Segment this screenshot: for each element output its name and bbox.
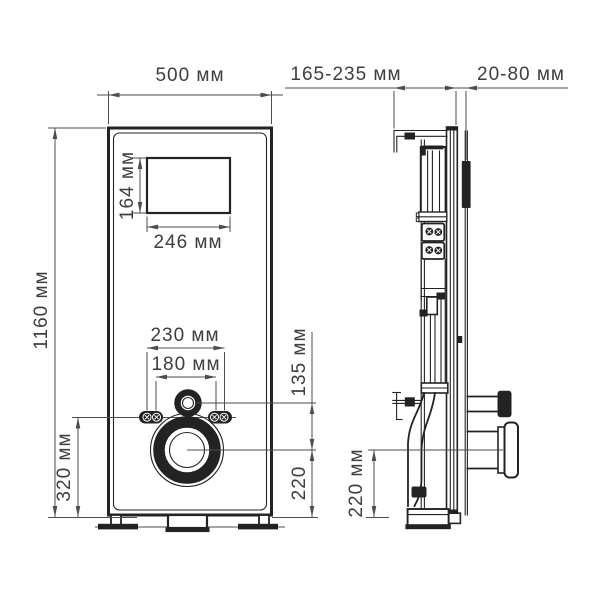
- cistern: [416, 146, 447, 222]
- valve-bracket: [393, 393, 421, 420]
- clamp-plates: [422, 224, 445, 260]
- dim-window-height-label: 164 мм: [117, 151, 138, 220]
- installation-frame-drawing: 500 мм 164 мм 246 мм 230 мм: [0, 0, 600, 600]
- frame-front-rail: [447, 127, 463, 516]
- dim-inlet-outlet-and-outlet-height: 135 мм 220: [272, 327, 318, 517]
- dim-depth-range-label: 165-235 мм: [290, 64, 401, 85]
- dim-frame-width-label: 500 мм: [155, 65, 224, 86]
- dim-outlet-height-side: 220 мм: [346, 448, 389, 517]
- dim-frame-width: 500 мм: [97, 65, 283, 124]
- front-view: 500 мм 164 мм 246 мм 230 мм: [31, 65, 318, 532]
- dim-stud-spacing-outer-label: 230 мм: [150, 325, 219, 346]
- mounting-studs: [72, 411, 236, 424]
- dim-outlet-height-side-label: 220 мм: [346, 448, 367, 517]
- dim-wall-gap-range-label: 20-80 мм: [477, 64, 565, 85]
- wall-plane: [462, 131, 471, 515]
- flush-pipe-assembly: [408, 259, 448, 506]
- dim-outlet-height-front-label: 220: [289, 466, 310, 501]
- dim-stud-height: 320 мм: [54, 418, 80, 518]
- dim-frame-height-label: 1160 мм: [31, 270, 52, 349]
- drawing-canvas: 500 мм 164 мм 246 мм 230 мм: [0, 0, 600, 600]
- dim-stud-height-label: 320 мм: [54, 432, 75, 501]
- side-view: 165-235 мм 20-80 мм 220 мм: [285, 64, 568, 529]
- dim-inlet-to-outlet-label: 135 мм: [289, 327, 310, 396]
- flush-plate-window: [147, 158, 230, 213]
- dim-stud-spacing-inner-label: 180 мм: [151, 354, 220, 375]
- dim-window-width-label: 246 мм: [153, 232, 222, 253]
- water-supply-stub: [468, 391, 512, 417]
